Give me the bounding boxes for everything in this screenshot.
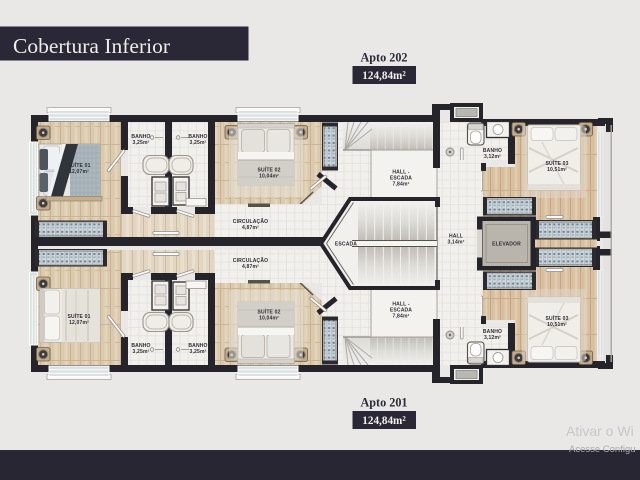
- svg-text:SUÍTE 0112,07m²: SUÍTE 0112,07m²: [67, 312, 90, 326]
- svg-text:SUÍTE 0112,07m²: SUÍTE 0112,07m²: [67, 161, 90, 175]
- svg-text:BANHO3,25m²: BANHO3,25m²: [131, 343, 150, 355]
- svg-text:BANHO3,12m²: BANHO3,12m²: [483, 329, 502, 341]
- svg-text:Ativar o Wi: Ativar o Wi: [566, 423, 634, 439]
- svg-text:ELEVADOR: ELEVADOR: [492, 242, 521, 248]
- svg-text:HALL -ESCADA7,84m²: HALL -ESCADA7,84m²: [390, 301, 412, 319]
- svg-text:Acesse Configu: Acesse Configu: [569, 444, 636, 455]
- svg-text:124,84m²: 124,84m²: [362, 415, 406, 427]
- svg-text:SUÍTE 0310,51m²: SUÍTE 0310,51m²: [545, 159, 568, 173]
- svg-text:SUÍTE 0210,04m²: SUÍTE 0210,04m²: [257, 307, 280, 321]
- svg-text:BANHO3,25m²: BANHO3,25m²: [131, 134, 150, 146]
- svg-text:Apto 201: Apto 201: [360, 396, 407, 410]
- svg-text:BANHO3,25m²: BANHO3,25m²: [188, 343, 207, 355]
- svg-text:ESCADA: ESCADA: [335, 242, 357, 248]
- svg-text:HALL3,14m²: HALL3,14m²: [448, 234, 465, 246]
- svg-text:SUÍTE 0310,51m²: SUÍTE 0310,51m²: [545, 314, 568, 328]
- svg-text:Apto 202: Apto 202: [360, 51, 407, 65]
- svg-text:BANHO3,12m²: BANHO3,12m²: [483, 148, 502, 160]
- svg-text:Cobertura Inferior: Cobertura Inferior: [13, 34, 170, 58]
- svg-text:SUÍTE 0210,04m²: SUÍTE 0210,04m²: [257, 165, 280, 179]
- svg-text:BANHO3,25m²: BANHO3,25m²: [188, 134, 207, 146]
- svg-text:HALL -ESCADA7,84m²: HALL -ESCADA7,84m²: [390, 169, 412, 187]
- svg-text:124,84m²: 124,84m²: [362, 70, 406, 82]
